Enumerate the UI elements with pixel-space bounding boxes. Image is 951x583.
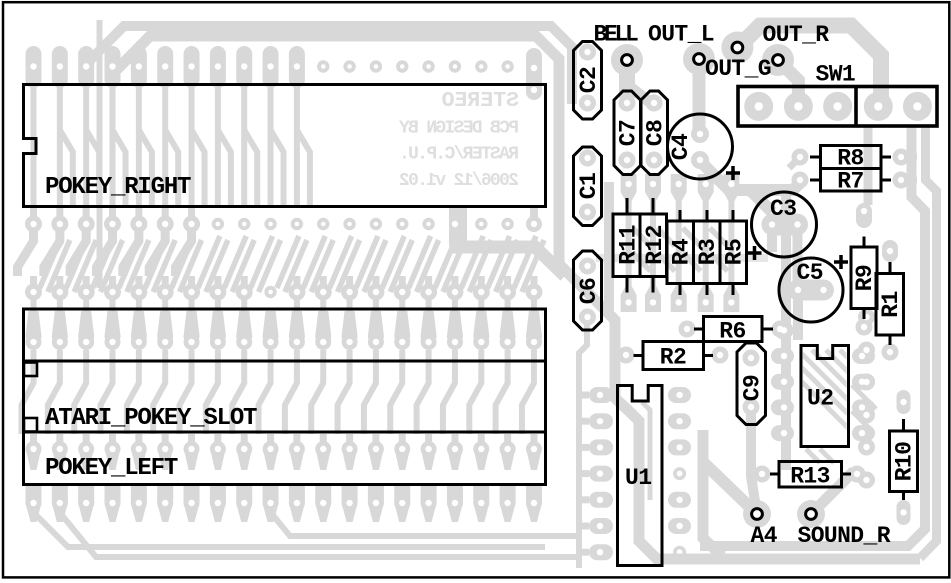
svg-text:C1: C1 bbox=[576, 173, 602, 199]
svg-text:SOUND_R: SOUND_R bbox=[798, 523, 891, 549]
svg-text:OUT_L: OUT_L bbox=[648, 22, 714, 48]
svg-text:R11: R11 bbox=[616, 225, 642, 265]
svg-text:R12: R12 bbox=[642, 225, 668, 265]
svg-text:C9: C9 bbox=[740, 375, 766, 401]
svg-text:2006/12 v1.02: 2006/12 v1.02 bbox=[400, 171, 519, 191]
svg-text:SW1: SW1 bbox=[816, 62, 856, 88]
svg-text:C7: C7 bbox=[616, 120, 642, 146]
svg-text:R5: R5 bbox=[722, 239, 748, 265]
svg-text:C8: C8 bbox=[643, 120, 669, 146]
svg-text:RASTER/C.P.U.: RASTER/C.P.U. bbox=[401, 145, 519, 165]
svg-text:R13: R13 bbox=[790, 464, 830, 490]
svg-text:R9: R9 bbox=[852, 265, 878, 291]
svg-text:C6: C6 bbox=[576, 278, 602, 304]
svg-text:R1: R1 bbox=[878, 291, 904, 317]
svg-text:OUT_G: OUT_G bbox=[705, 56, 771, 82]
svg-text:PCB DESIGN BY: PCB DESIGN BY bbox=[399, 119, 519, 139]
svg-text:C3: C3 bbox=[770, 196, 796, 222]
svg-text:U2: U2 bbox=[807, 386, 833, 412]
svg-text:C5: C5 bbox=[797, 260, 823, 286]
svg-text:POKEY_LEFT: POKEY_LEFT bbox=[45, 455, 178, 482]
svg-text:A4: A4 bbox=[751, 523, 778, 549]
svg-text:R4: R4 bbox=[669, 238, 695, 265]
svg-text:R2: R2 bbox=[660, 345, 686, 371]
svg-text:R6: R6 bbox=[719, 319, 745, 345]
svg-text:U1: U1 bbox=[625, 465, 651, 491]
svg-text:BELL: BELL bbox=[594, 22, 639, 48]
svg-text:OUT_R: OUT_R bbox=[763, 22, 830, 48]
svg-text:C4: C4 bbox=[668, 133, 694, 160]
svg-text:STEREO: STEREO bbox=[441, 89, 519, 113]
svg-text:R7: R7 bbox=[837, 169, 863, 195]
svg-text:POKEY_RIGHT: POKEY_RIGHT bbox=[45, 174, 191, 201]
svg-text:C2: C2 bbox=[576, 67, 602, 93]
svg-text:ATARI_POKEY_SLOT: ATARI_POKEY_SLOT bbox=[45, 405, 257, 432]
svg-text:R3: R3 bbox=[695, 239, 721, 265]
svg-text:R10: R10 bbox=[892, 442, 918, 482]
